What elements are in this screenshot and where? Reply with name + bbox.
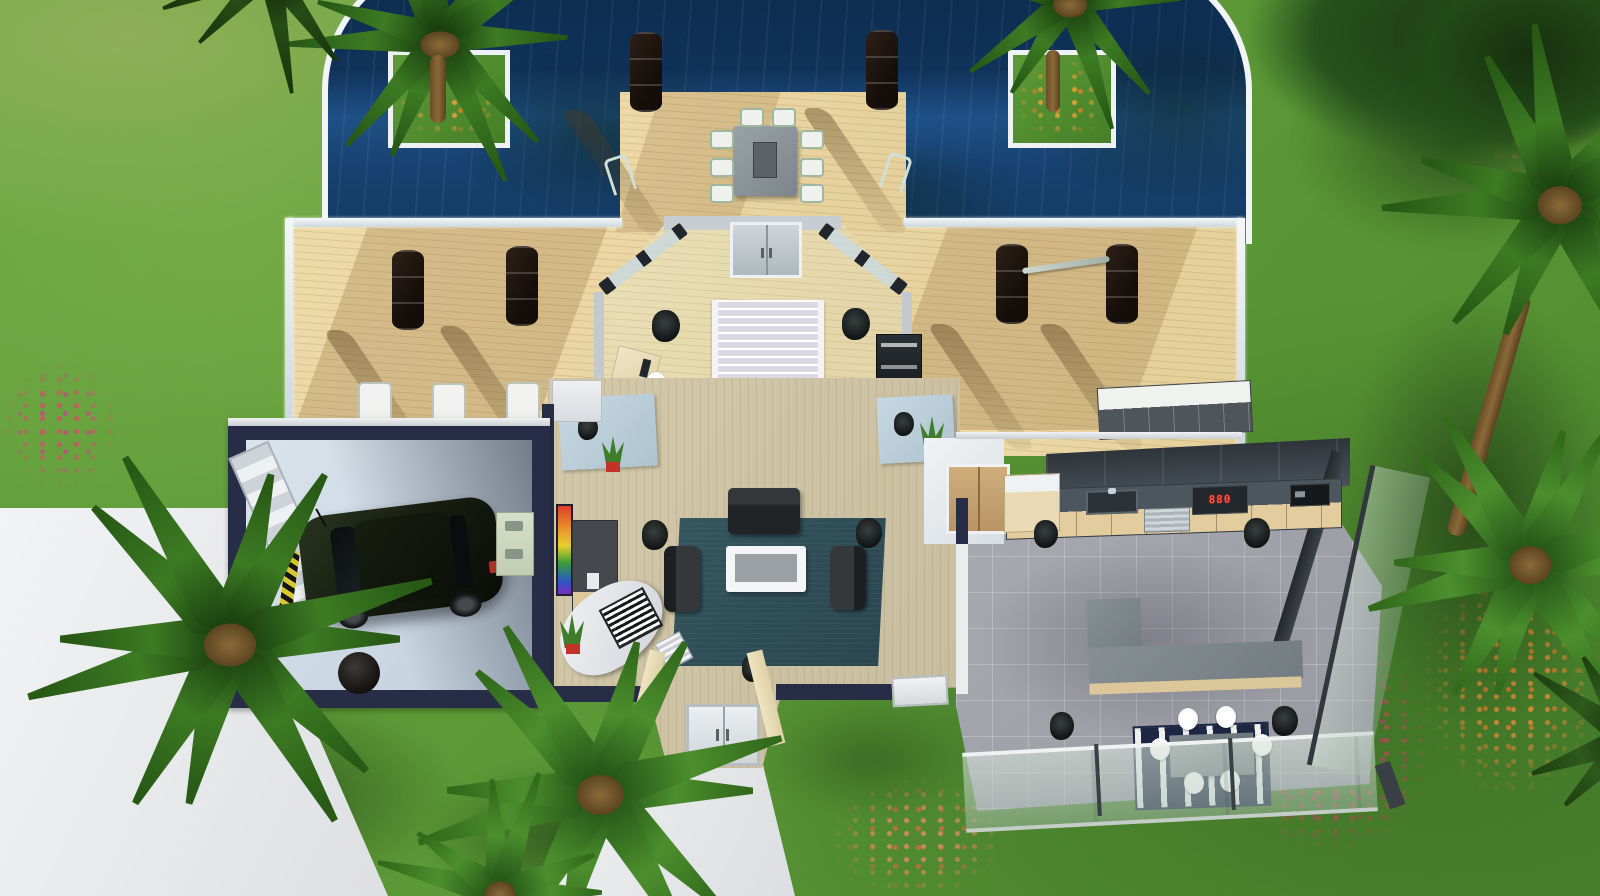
palm-trunk [1046,50,1060,112]
palm-tree [1390,60,1600,350]
white-cabinet[interactable] [552,380,602,422]
wall-artwork [556,504,573,596]
pool-fence [285,218,293,432]
dining-chair[interactable] [1216,706,1236,728]
door-handle [769,248,772,258]
palm-trunk [430,55,446,123]
patio-chair[interactable] [740,108,764,127]
bar-shelf-glassware [881,343,917,347]
plant-pot [606,462,620,472]
workbench-tools [505,549,523,559]
wall-cap [956,432,1242,439]
outdoor-buffet-counter[interactable] [1097,380,1254,440]
palm-tree [940,0,1200,100]
deck-pillar [392,250,424,330]
deck-pillar [630,32,662,112]
faucet [1108,488,1116,494]
patio-chair[interactable] [800,158,824,177]
stove[interactable]: 880 [1192,485,1248,515]
kitchen-island[interactable] [1086,592,1303,695]
tv-console[interactable] [728,488,800,534]
patio-chair[interactable] [710,130,734,149]
fireplace-vent [587,573,599,589]
side-door[interactable] [891,675,948,708]
stove-display: 880 [1193,493,1247,506]
table-inset [735,554,797,582]
coffee-table[interactable] [726,546,806,592]
microwave[interactable] [1290,483,1330,506]
patio-centerpiece [753,142,777,178]
kitchen-left-wall [956,544,968,694]
deck-pillar [866,30,898,110]
patio-chair[interactable] [800,184,824,203]
pool-fence [288,218,622,227]
bar-shelf-glassware [881,365,917,369]
workbench-tools [505,521,523,531]
tree-shadow [760,700,980,820]
armchair[interactable] [830,546,866,610]
door-split [978,467,980,531]
pool-deck-double-door[interactable] [730,222,802,278]
palm-tree [380,790,620,896]
pool-fence [904,218,1242,227]
palm-tree [150,0,390,60]
patio-table[interactable] [733,126,797,196]
palm-tree [30,480,430,810]
exterior-wall [776,684,892,700]
deck-pillar [996,244,1028,324]
patio-chair[interactable] [772,108,796,127]
deck-pillar [1106,244,1138,324]
door-handle [761,248,764,258]
dishwasher[interactable] [1144,507,1190,533]
dining-chair[interactable] [1178,708,1198,730]
palm-tree [1520,640,1600,840]
patio-chair[interactable] [710,184,734,203]
game-viewport: 880 [0,0,1600,896]
deck-pillar [506,246,538,326]
exterior-wall [956,498,968,544]
patio-chair[interactable] [800,130,824,149]
flower-patch [0,360,120,490]
armchair[interactable] [664,546,700,612]
kitchen-sink[interactable] [1086,489,1138,515]
patio-chair[interactable] [710,158,734,177]
garage-workbench[interactable] [496,512,534,576]
garage-wall-cap [228,418,550,426]
microwave-display [1295,491,1305,497]
